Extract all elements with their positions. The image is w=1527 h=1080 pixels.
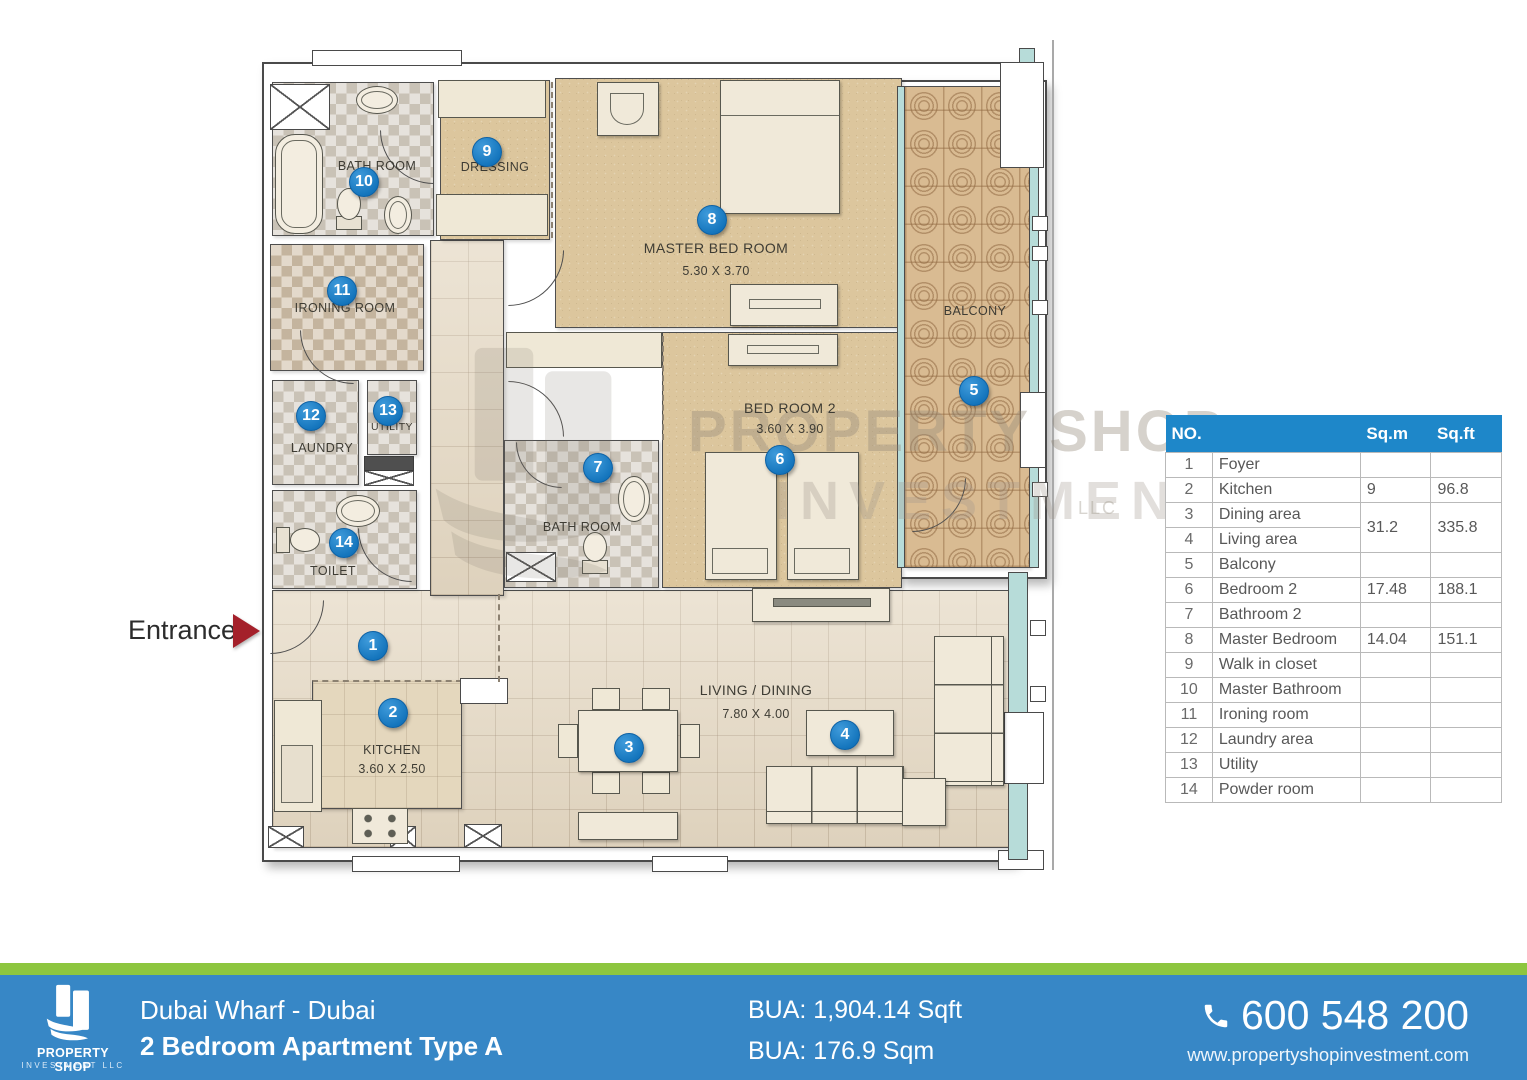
kitchen-pillar xyxy=(460,678,508,704)
dining-chair-4 xyxy=(680,724,700,758)
marker-ironing: 11 xyxy=(327,276,357,306)
tv-unit xyxy=(752,588,890,622)
marker-foyer: 1 xyxy=(358,631,388,661)
bua-sqft: BUA: 1,904.14 Sqft xyxy=(748,996,962,1025)
col-no: NO. xyxy=(1166,415,1361,453)
table-row: 6Bedroom 217.48188.1 xyxy=(1166,578,1502,603)
dims-master-bedroom: 5.30 X 3.70 xyxy=(682,264,749,278)
bathroom-sink xyxy=(356,86,398,114)
marker-dining: 3 xyxy=(614,733,644,763)
wall-tab-6 xyxy=(1030,686,1046,702)
table-row: 10Master Bathroom xyxy=(1166,678,1502,703)
bottom-wall-column-2 xyxy=(652,856,728,872)
twin-bed-1 xyxy=(705,452,777,580)
sofa-main xyxy=(766,766,904,824)
dining-chair-1 xyxy=(592,688,620,710)
wall-tab-2 xyxy=(1032,246,1048,261)
marker-toilet: 14 xyxy=(329,528,359,558)
footer-green-strip xyxy=(0,963,1527,975)
label-bedroom2: BED ROOM 2 xyxy=(744,400,836,416)
marker-bedroom2: 6 xyxy=(765,445,795,475)
table-row: 13Utility xyxy=(1166,753,1502,778)
table-row: 2Kitchen996.8 xyxy=(1166,478,1502,503)
dining-chair-6 xyxy=(642,772,670,794)
powder-sink xyxy=(336,495,380,527)
dining-chair-2 xyxy=(642,688,670,710)
wardrobe-top xyxy=(438,80,546,118)
shaft-top-left xyxy=(270,84,330,130)
sofa-side xyxy=(934,636,1004,786)
watermark-logo xyxy=(420,330,670,605)
master-dresser xyxy=(730,284,838,326)
unit-type: 2 Bedroom Apartment Type A xyxy=(140,1031,503,1062)
marker-laundry: 12 xyxy=(296,401,326,431)
bathtub xyxy=(275,134,323,234)
dressing-boundary-dash xyxy=(551,82,553,238)
label-bathroom2: BATH ROOM xyxy=(543,520,621,534)
bedroom2-dresser xyxy=(728,334,838,366)
utility-shelf xyxy=(364,456,414,471)
bua-sqm: BUA: 176.9 Sqm xyxy=(748,1037,934,1066)
laundry-floor xyxy=(272,380,359,485)
dining-sideboard xyxy=(578,812,678,840)
website-url: www.propertyshopinvestment.com xyxy=(1187,1044,1469,1066)
table-row: 8Master Bedroom14.04151.1 xyxy=(1166,628,1502,653)
floorplan-flyer: PROPERTY SHOP INVESTMENT LLC BATH ROOM D… xyxy=(0,0,1527,1080)
side-table xyxy=(902,778,946,826)
marker-master-bathroom: 10 xyxy=(349,167,379,197)
phone-number: 600 548 200 xyxy=(1241,992,1469,1039)
watermark-line2: INVESTMENT xyxy=(775,470,1223,532)
wall-tab-1 xyxy=(1032,216,1048,231)
table-row: 7Bathroom 2 xyxy=(1166,603,1502,628)
bottom-wall-column-1 xyxy=(352,856,460,872)
dining-chair-3 xyxy=(558,724,578,758)
utility-hatch xyxy=(364,470,414,486)
property-shop-logo-icon xyxy=(42,983,104,1048)
project-title: Dubai Wharf - Dubai xyxy=(140,995,376,1026)
foyer-boundary-dash xyxy=(498,594,500,682)
marker-balcony: 5 xyxy=(959,376,989,406)
marker-dressing: 9 xyxy=(472,137,502,167)
phone-icon xyxy=(1201,1001,1231,1031)
table-row: 3Dining area31.2335.8 xyxy=(1166,503,1502,528)
kitchen-counter xyxy=(274,700,322,812)
top-wall-column xyxy=(312,50,462,66)
table-row: 1Foyer xyxy=(1166,453,1502,478)
label-kitchen: KITCHEN xyxy=(363,743,421,757)
table-row: 11Ironing room xyxy=(1166,703,1502,728)
bedroom-chair xyxy=(597,82,659,136)
dining-chair-5 xyxy=(592,772,620,794)
watermark-line3: LLC xyxy=(1078,498,1117,519)
areas-table-header: NO. Sq.m Sq.ft xyxy=(1166,415,1502,453)
dims-living-dining: 7.80 X 4.00 xyxy=(722,707,789,721)
marker-utility: 13 xyxy=(373,396,403,426)
marker-living: 4 xyxy=(830,720,860,750)
marker-bathroom2: 7 xyxy=(583,453,613,483)
marker-master-bedroom: 8 xyxy=(697,205,727,235)
label-toilet: TOILET xyxy=(310,564,356,578)
table-row: 12Laundry area xyxy=(1166,728,1502,753)
col-sqm: Sq.m xyxy=(1360,415,1431,453)
logo-subtitle: INVESTMENT LLC xyxy=(18,1061,128,1070)
powder-wc xyxy=(276,524,322,554)
shaft-bottom-3 xyxy=(464,824,502,848)
table-row: 5Balcony xyxy=(1166,553,1502,578)
bidet xyxy=(384,196,412,234)
col-sqft: Sq.ft xyxy=(1431,415,1502,453)
balcony-pillar-top xyxy=(1000,62,1044,168)
master-bed xyxy=(720,80,840,214)
stove xyxy=(352,808,408,844)
wall-tab-3 xyxy=(1032,300,1048,315)
label-master-bedroom: MASTER BED ROOM xyxy=(644,240,788,256)
wall-tab-5 xyxy=(1030,620,1046,636)
areas-table: NO. Sq.m Sq.ft 1Foyer 2Kitchen996.8 3Din… xyxy=(1165,415,1502,803)
dims-kitchen: 3.60 X 2.50 xyxy=(358,762,425,776)
table-row: 9Walk in closet xyxy=(1166,653,1502,678)
marker-kitchen: 2 xyxy=(378,698,408,728)
label-laundry: LAUNDRY xyxy=(291,441,353,455)
label-master-bathroom: BATH ROOM xyxy=(338,159,416,173)
label-living-dining: LIVING / DINING xyxy=(700,682,813,698)
label-balcony: BALCONY xyxy=(944,304,1007,318)
entrance-arrow-icon xyxy=(233,614,260,648)
phone-row: 600 548 200 xyxy=(1201,992,1469,1039)
dims-bedroom2: 3.60 X 3.90 xyxy=(756,422,823,436)
living-pillar xyxy=(1004,712,1044,784)
entrance-label: Entrance xyxy=(128,615,236,646)
shaft-bottom-1 xyxy=(268,826,304,848)
wardrobe-bottom xyxy=(436,194,548,236)
table-row: 14Powder room xyxy=(1166,778,1502,803)
